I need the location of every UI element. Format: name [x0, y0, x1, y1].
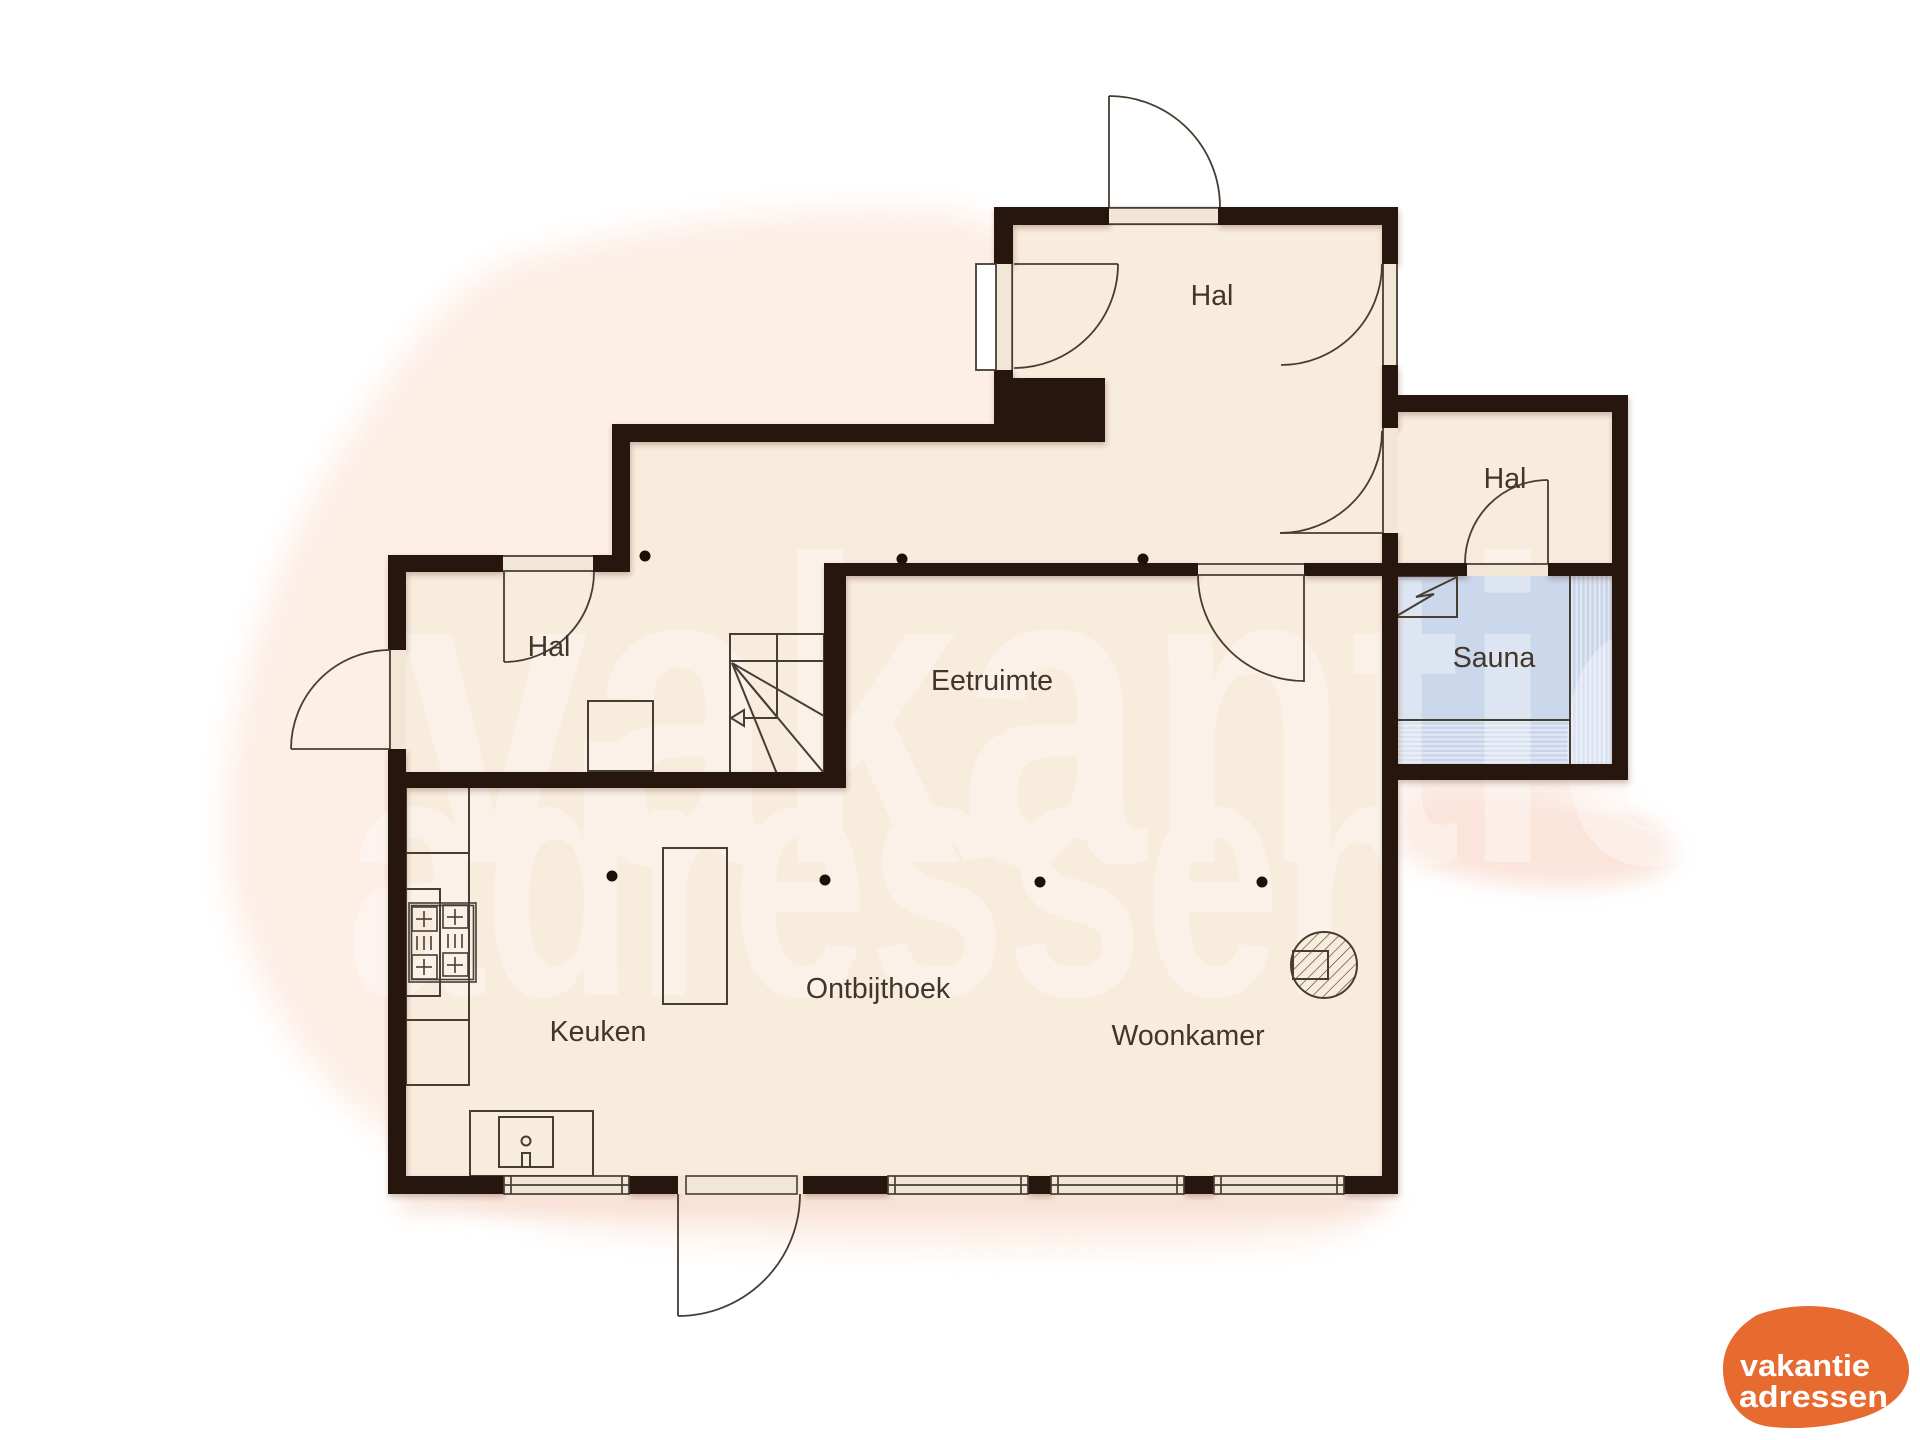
svg-text:adressen: adressen	[346, 679, 1432, 1070]
svg-text:adressen: adressen	[1739, 1379, 1888, 1414]
svg-text:Eetruimte: Eetruimte	[931, 665, 1053, 697]
svg-text:Hal: Hal	[1191, 280, 1234, 312]
svg-text:vakantie: vakantie	[1740, 1348, 1870, 1383]
svg-text:Woonkamer: Woonkamer	[1111, 1020, 1265, 1052]
svg-text:Ontbijthoek: Ontbijthoek	[806, 973, 951, 1005]
svg-text:Sauna: Sauna	[1453, 642, 1536, 674]
svg-text:Hal: Hal	[528, 631, 571, 663]
svg-text:Hal: Hal	[1484, 463, 1527, 495]
svg-text:Keuken: Keuken	[550, 1016, 647, 1048]
